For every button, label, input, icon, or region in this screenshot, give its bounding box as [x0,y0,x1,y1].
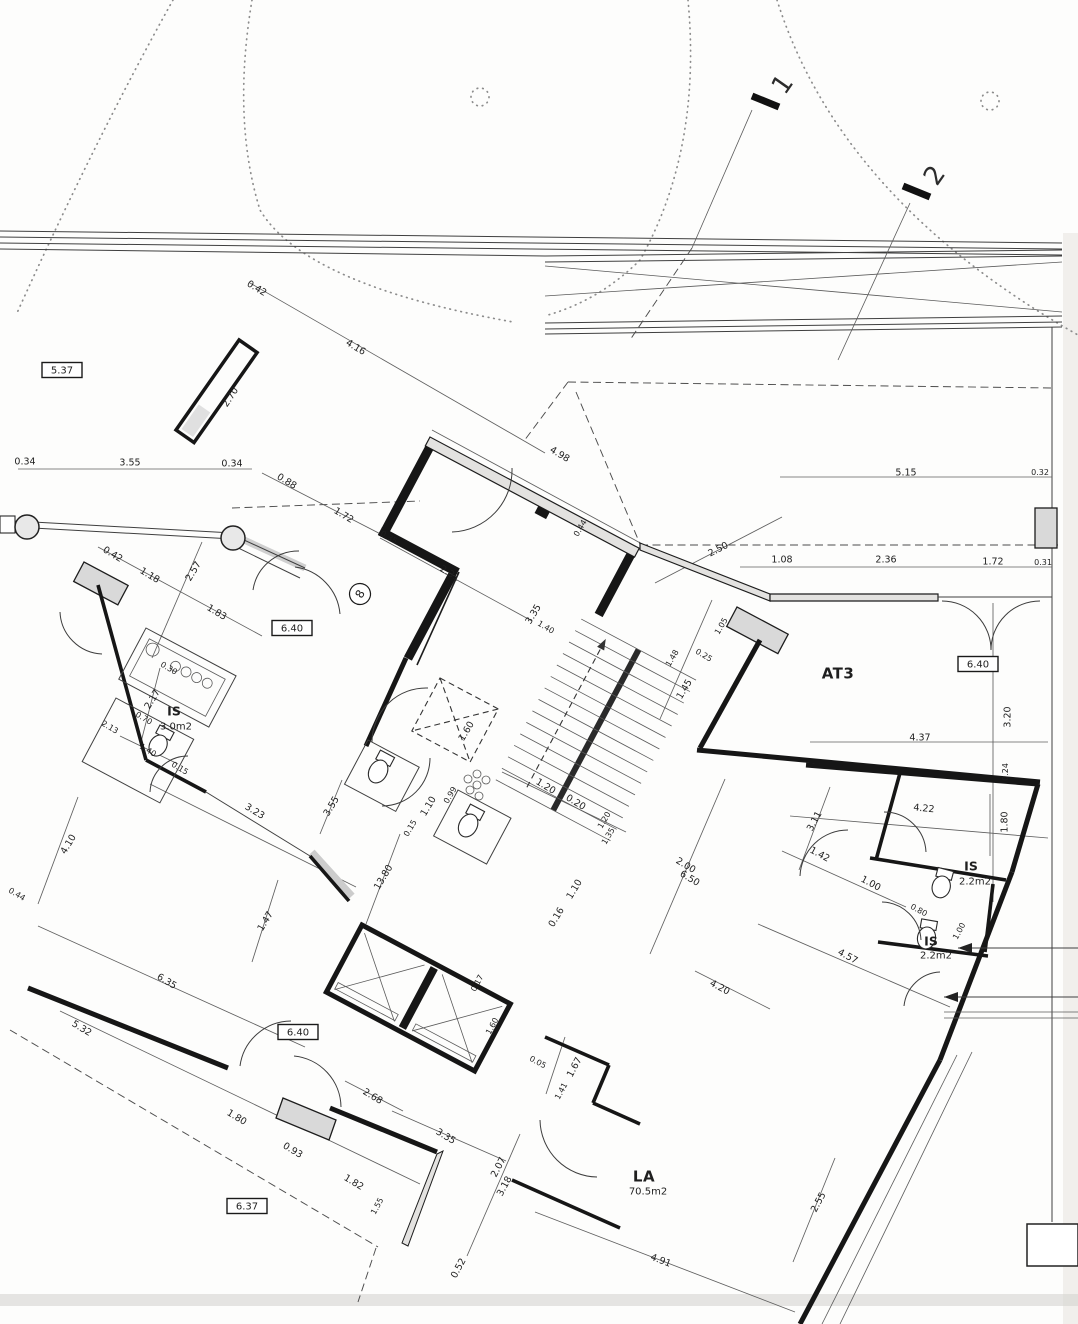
svg-text:0.42: 0.42 [101,545,125,565]
dim-label: 0.42 [101,545,125,565]
svg-text:70.5m2: 70.5m2 [629,1187,667,1198]
svg-text:4.22: 4.22 [913,802,935,815]
svg-text:IS: IS [167,703,181,718]
room-label: AT3 [822,664,855,682]
site-strip [176,340,257,443]
dim-label: 0.42 [245,279,269,299]
dim-label: 6.35 [155,972,179,992]
svg-text:0.15: 0.15 [402,818,419,838]
svg-text:5.15: 5.15 [895,467,916,478]
dim-label: 0.34 [221,458,242,469]
dim-label: 6.50 [678,869,702,889]
dim-label: 0.16 [547,906,567,930]
svg-text:1.10: 1.10 [565,878,585,902]
dim-label: 0.30 [159,660,179,677]
level-label: 6.37 [227,1199,267,1214]
svg-text:6.37: 6.37 [236,1202,258,1213]
dim-label: 0.31 [1034,558,1052,567]
dim-label: 2.50 [706,540,730,559]
dim-label: 1.45 [675,678,695,702]
core-pier-wall [366,658,406,746]
dim-label: 5.32 [70,1019,94,1039]
svg-text:1.00: 1.00 [951,921,967,941]
svg-text:1.82: 1.82 [342,1173,366,1193]
svg-text:6.40: 6.40 [281,624,303,635]
svg-text:2.50: 2.50 [706,540,730,559]
svg-text:1.10: 1.10 [419,795,439,819]
svg-text:1.42: 1.42 [808,845,832,865]
svg-text:1.48: 1.48 [664,648,681,668]
svg-text:0.30: 0.30 [159,660,179,677]
section-marker: 2 [918,160,952,191]
svg-text:1.80: 1.80 [225,1108,249,1128]
svg-text:2.55: 2.55 [809,1190,829,1214]
svg-text:1.60: 1.60 [457,720,477,744]
dim-label: 3.55 [322,795,342,819]
svg-text:3.0m2: 3.0m2 [160,722,192,733]
dim-label: 1.08 [771,554,792,565]
dim-label: 1.72 [332,506,356,526]
svg-text:3.55: 3.55 [322,795,342,819]
dim-label: 0.15 [402,818,419,838]
svg-text:3.55: 3.55 [119,457,140,468]
dim-label: 1.10 [419,795,439,819]
dim-label: 0.25 [694,647,714,664]
svg-text:0.32: 0.32 [1031,468,1049,477]
svg-text:1.45: 1.45 [675,678,695,702]
svg-text:4.10: 4.10 [59,833,79,857]
svg-text:1.18: 1.18 [138,566,162,586]
svg-text:2.17: 2.17 [143,688,163,712]
dim-label: 1.60 [457,720,477,744]
room-area-label: 2.2m2 [959,877,991,888]
svg-text:3.11: 3.11 [805,809,825,833]
svg-text:0.93: 0.93 [281,1141,305,1161]
dim-label: 1.48 [664,648,681,668]
svg-text:5.32: 5.32 [70,1019,94,1039]
room-label: IS [167,703,181,718]
svg-text:3.35: 3.35 [434,1127,458,1147]
svg-text:0.99: 0.99 [442,785,459,805]
wall-pier [276,1098,336,1140]
dim-label: 0.88 [275,472,299,492]
svg-text:1.80: 1.80 [999,811,1010,832]
svg-text:2.36: 2.36 [875,554,896,565]
svg-text:LA: LA [633,1167,655,1185]
toilet-fixture [455,804,486,841]
dim-label: 2.17 [143,688,163,712]
window-band [402,1151,443,1246]
column [15,515,39,539]
svg-text:2.2m2: 2.2m2 [959,877,991,888]
column [221,526,245,550]
room-area-label: 2.2m2 [920,951,952,962]
dim-label: 4.10 [59,833,79,857]
svg-text:6.35: 6.35 [155,972,179,992]
svg-text:0.52: 0.52 [449,1256,469,1280]
dim-label: 0.32 [1031,468,1049,477]
floor-plan-page: 5.370.424.162.70120.343.550.340.881.720.… [0,0,1078,1324]
dim-label: 1.42 [808,845,832,865]
dim-label: 5.15 [895,467,916,478]
stair-core-walls [333,437,639,730]
dim-label: 0.93 [281,1141,305,1161]
wc-cubicles [145,725,511,864]
window-pier [1035,508,1057,548]
dim-label: 13.80 [372,863,395,892]
svg-text:0.42: 0.42 [245,279,269,299]
svg-text:2: 2 [918,160,952,191]
svg-text:1.47: 1.47 [256,910,276,934]
dim-label: 2.70 [220,386,241,410]
dim-label: 0.52 [449,1256,469,1280]
level-label: 5.37 [42,363,82,378]
svg-text:0.24: 0.24 [1001,763,1010,781]
svg-text:0.34: 0.34 [14,456,35,467]
dim-label: 0.05 [528,1054,548,1070]
survey-point-circle [981,92,999,110]
stair-direction-line [527,646,602,787]
dim-label: 1.55 [369,1196,385,1216]
floor-plan-drawing: 5.370.424.162.70120.343.550.340.881.720.… [0,0,1078,1324]
dim-label: 4.91 [649,1252,673,1270]
svg-text:6.40: 6.40 [287,1028,309,1039]
svg-text:13.80: 13.80 [372,863,395,892]
svg-text:1: 1 [766,69,800,100]
survey-point-circle [471,88,489,106]
svg-text:0.88: 0.88 [275,472,299,492]
dim-label: 4.57 [836,947,860,967]
dim-label: 4.20 [708,978,732,998]
section-marker: 1 [766,69,800,100]
elevator-shafts [326,925,510,1071]
dim-label: 3.55 [119,457,140,468]
svg-text:3.20: 3.20 [1002,706,1013,727]
svg-text:6.50: 6.50 [678,869,702,889]
svg-text:1.72: 1.72 [982,556,1003,567]
room-area-label: 3.0m2 [160,722,192,733]
void-shaft [412,678,498,762]
dim-label: 1.41 [553,1081,569,1101]
dim-label: 1.72 [982,556,1003,567]
dim-label: 2.13 [100,719,120,736]
dim-label: 1.80 [999,811,1010,832]
dim-label: 1.40 [536,619,556,636]
dim-label: 1.83 [205,603,229,623]
dim-label: 4.22 [913,802,935,815]
dim-label: 1.18 [138,566,162,586]
dim-label: 4.98 [548,445,572,465]
dim-label: 2.55 [809,1190,829,1214]
dim-label: 0.44 [7,886,27,903]
dim-label: 1.82 [342,1173,366,1193]
svg-text:4.20: 4.20 [708,978,732,998]
svg-text:0.44: 0.44 [7,886,27,903]
svg-text:4.57: 4.57 [836,947,860,967]
svg-text:0.20: 0.20 [564,793,588,813]
svg-text:1.40: 1.40 [536,619,556,636]
stairs [496,619,696,841]
svg-text:4.98: 4.98 [548,445,572,465]
svg-text:2.13: 2.13 [100,719,120,736]
dimension-lines [18,283,1052,1312]
dim-label: 4.37 [909,732,930,743]
svg-text:4.91: 4.91 [649,1252,673,1270]
dim-label: 0.34 [14,456,35,467]
svg-text:2.57: 2.57 [184,560,204,584]
left-arrow-icon [944,992,958,1002]
room-area-label: 70.5m2 [629,1187,667,1198]
svg-text:1.08: 1.08 [771,554,792,565]
dim-label: 0.99 [442,785,459,805]
svg-text:0.16: 0.16 [547,906,567,930]
dim-label: 3.35 [434,1127,458,1147]
hall-partition [417,572,459,665]
svg-text:AT3: AT3 [822,664,855,682]
dim-label: 0.24 [1001,763,1010,781]
svg-text:1.67: 1.67 [565,1055,585,1079]
dim-label: 1.00 [951,921,967,941]
grid-bubble: 8 [346,580,375,609]
detail-box [1027,1224,1078,1266]
door-swings [60,468,1040,1177]
svg-text:1.20: 1.20 [534,777,558,797]
svg-text:1.41: 1.41 [553,1081,569,1101]
svg-text:2.2m2: 2.2m2 [920,951,952,962]
colonnade [0,515,305,578]
section-marker-bar-1 [752,96,779,107]
dim-label: 1.80 [225,1108,249,1128]
dim-label: 2.36 [875,554,896,565]
dim-label: 3.23 [243,802,267,822]
dim-label: 4.16 [344,338,368,358]
svg-text:IS: IS [964,858,978,873]
section-marker-bar-2 [903,186,930,197]
room-label: IS [924,933,938,948]
level-label: 6.40 [272,621,312,636]
svg-text:2.68: 2.68 [361,1087,385,1107]
svg-text:IS: IS [924,933,938,948]
svg-text:1.55: 1.55 [369,1196,385,1216]
dim-label: 1.67 [565,1055,585,1079]
level-label: 6.40 [278,1025,318,1040]
right-wing [640,508,1057,1060]
svg-text:4.16: 4.16 [344,338,368,358]
level-label: 6.40 [958,657,998,672]
dim-label: 1.10 [565,878,585,902]
svg-text:2.70: 2.70 [220,386,241,410]
dim-label: 1.20 [534,777,558,797]
svg-text:0.34: 0.34 [221,458,242,469]
svg-text:0.31: 0.31 [1034,558,1052,567]
dim-label: 1.47 [256,910,276,934]
stair-direction-arrow [597,637,609,650]
svg-text:3.23: 3.23 [243,802,267,822]
dim-label: 0.20 [564,793,588,813]
dim-label: 3.11 [805,809,825,833]
svg-text:0.05: 0.05 [528,1054,548,1070]
svg-text:5.37: 5.37 [51,366,73,377]
dim-label: 3.20 [1002,706,1013,727]
svg-text:1.72: 1.72 [332,506,356,526]
svg-text:1.83: 1.83 [205,603,229,623]
site-dotted-arcs [17,0,1078,335]
toilet-fixture [930,867,955,900]
svg-text:0.25: 0.25 [694,647,714,664]
room-label: LA [633,1167,655,1185]
svg-text:4.37: 4.37 [909,732,930,743]
svg-text:6.40: 6.40 [967,660,989,671]
dim-label: 2.57 [184,560,204,584]
toilet-fixture [365,750,396,787]
dim-label: 2.68 [361,1087,385,1107]
room-label: IS [964,858,978,873]
